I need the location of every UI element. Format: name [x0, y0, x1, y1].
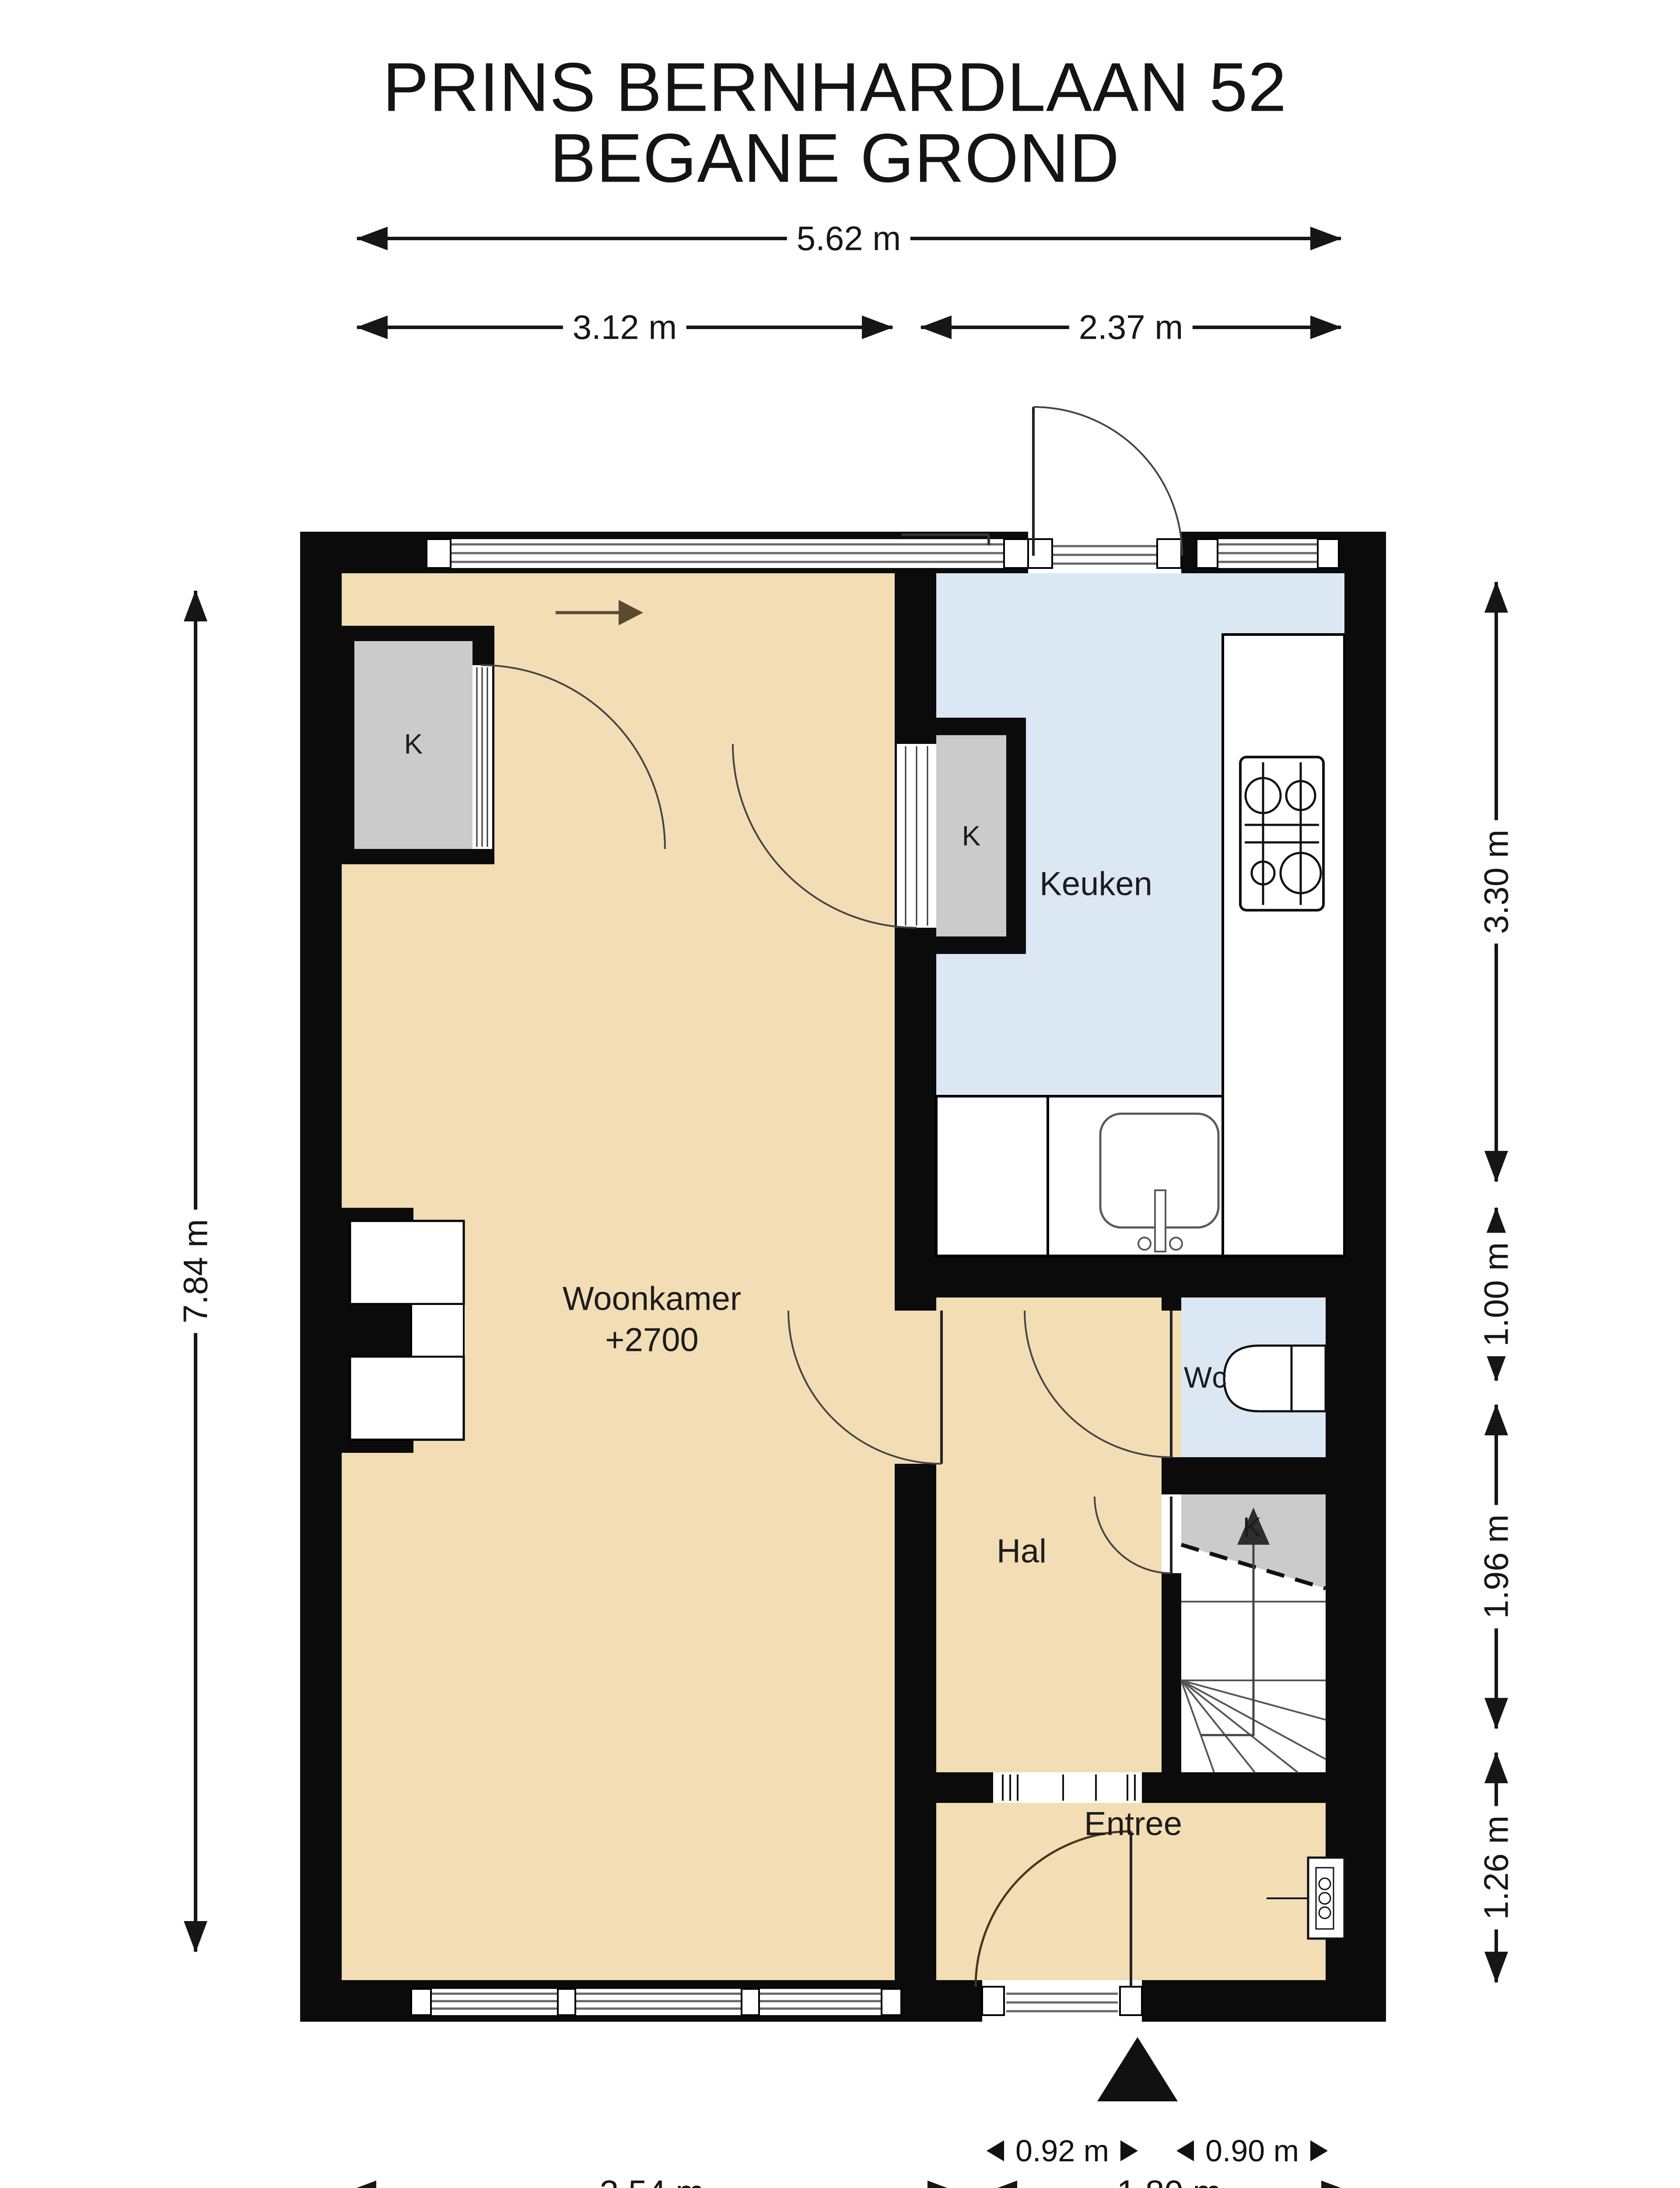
dim-door-width-value: 0.92 m: [1015, 2133, 1109, 2168]
arrow-left-icon: [987, 2140, 1004, 2161]
woonkamer-ceiling-label: +2700: [605, 1321, 698, 1359]
woonkamer-bottom-window: [411, 1989, 901, 2015]
entrance-triangle-icon: [1097, 2037, 1178, 2101]
dim-sidelight-width: 0.90 m: [1176, 2133, 1328, 2168]
keuken-label: Keuken: [1039, 865, 1152, 903]
dim-door-width: 0.92 m: [987, 2133, 1138, 2168]
dim-top-right: 2.37 m: [1069, 308, 1193, 347]
woonkamer-label: Woonkamer: [563, 1280, 741, 1318]
hal-label: Hal: [997, 1532, 1046, 1571]
dim-bottom-right: 1.80 m: [1107, 2173, 1231, 2188]
toilet-icon: [1224, 1346, 1326, 1411]
hal-floor: [936, 1297, 1162, 1772]
dim-right-wc: 1.00 m: [1477, 1233, 1516, 1356]
closet-middle-label: K: [962, 820, 981, 852]
plan-title-line2: BEGANE GROND: [550, 119, 1120, 198]
dim-bottom-left: 3.54 m: [590, 2173, 714, 2188]
keuken-back-door: [1028, 407, 1182, 573]
plan-title-line1: PRINS BERNHARDLAAN 52: [383, 48, 1287, 127]
dim-top-left: 3.12 m: [563, 308, 686, 347]
dim-right-entree: 1.26 m: [1477, 1806, 1516, 1929]
arrow-right-icon: [1120, 2140, 1138, 2161]
closet-woonkamer-label: K: [404, 728, 423, 760]
woonkamer-top-window: [427, 535, 1028, 568]
kitchen-counter-right: [1223, 635, 1344, 1256]
entree-label: Entree: [1084, 1805, 1182, 1843]
dim-sidelight-width-value: 0.90 m: [1205, 2133, 1299, 2168]
hal-entree-passage: [993, 1772, 1142, 1803]
dim-right-keuken: 3.30 m: [1477, 820, 1516, 943]
stove-icon: [1240, 757, 1323, 910]
keuken-top-window: [1197, 539, 1339, 568]
floorplan-drawing: [0, 0, 1680, 2188]
arrow-right-icon: [1310, 2140, 1328, 2161]
dim-top-total: 5.62 m: [787, 219, 910, 259]
dim-right-stairs: 1.96 m: [1477, 1505, 1516, 1628]
closet-understairs-label: K: [1243, 1511, 1262, 1543]
wc-label: Wc: [1184, 1360, 1227, 1395]
floorplan-page: PRINS BERNHARDLAAN 52 BEGANE GROND 5.62 …: [0, 0, 1680, 2188]
dim-left-total: 7.84 m: [176, 1210, 216, 1333]
arrow-left-icon: [1176, 2140, 1194, 2161]
